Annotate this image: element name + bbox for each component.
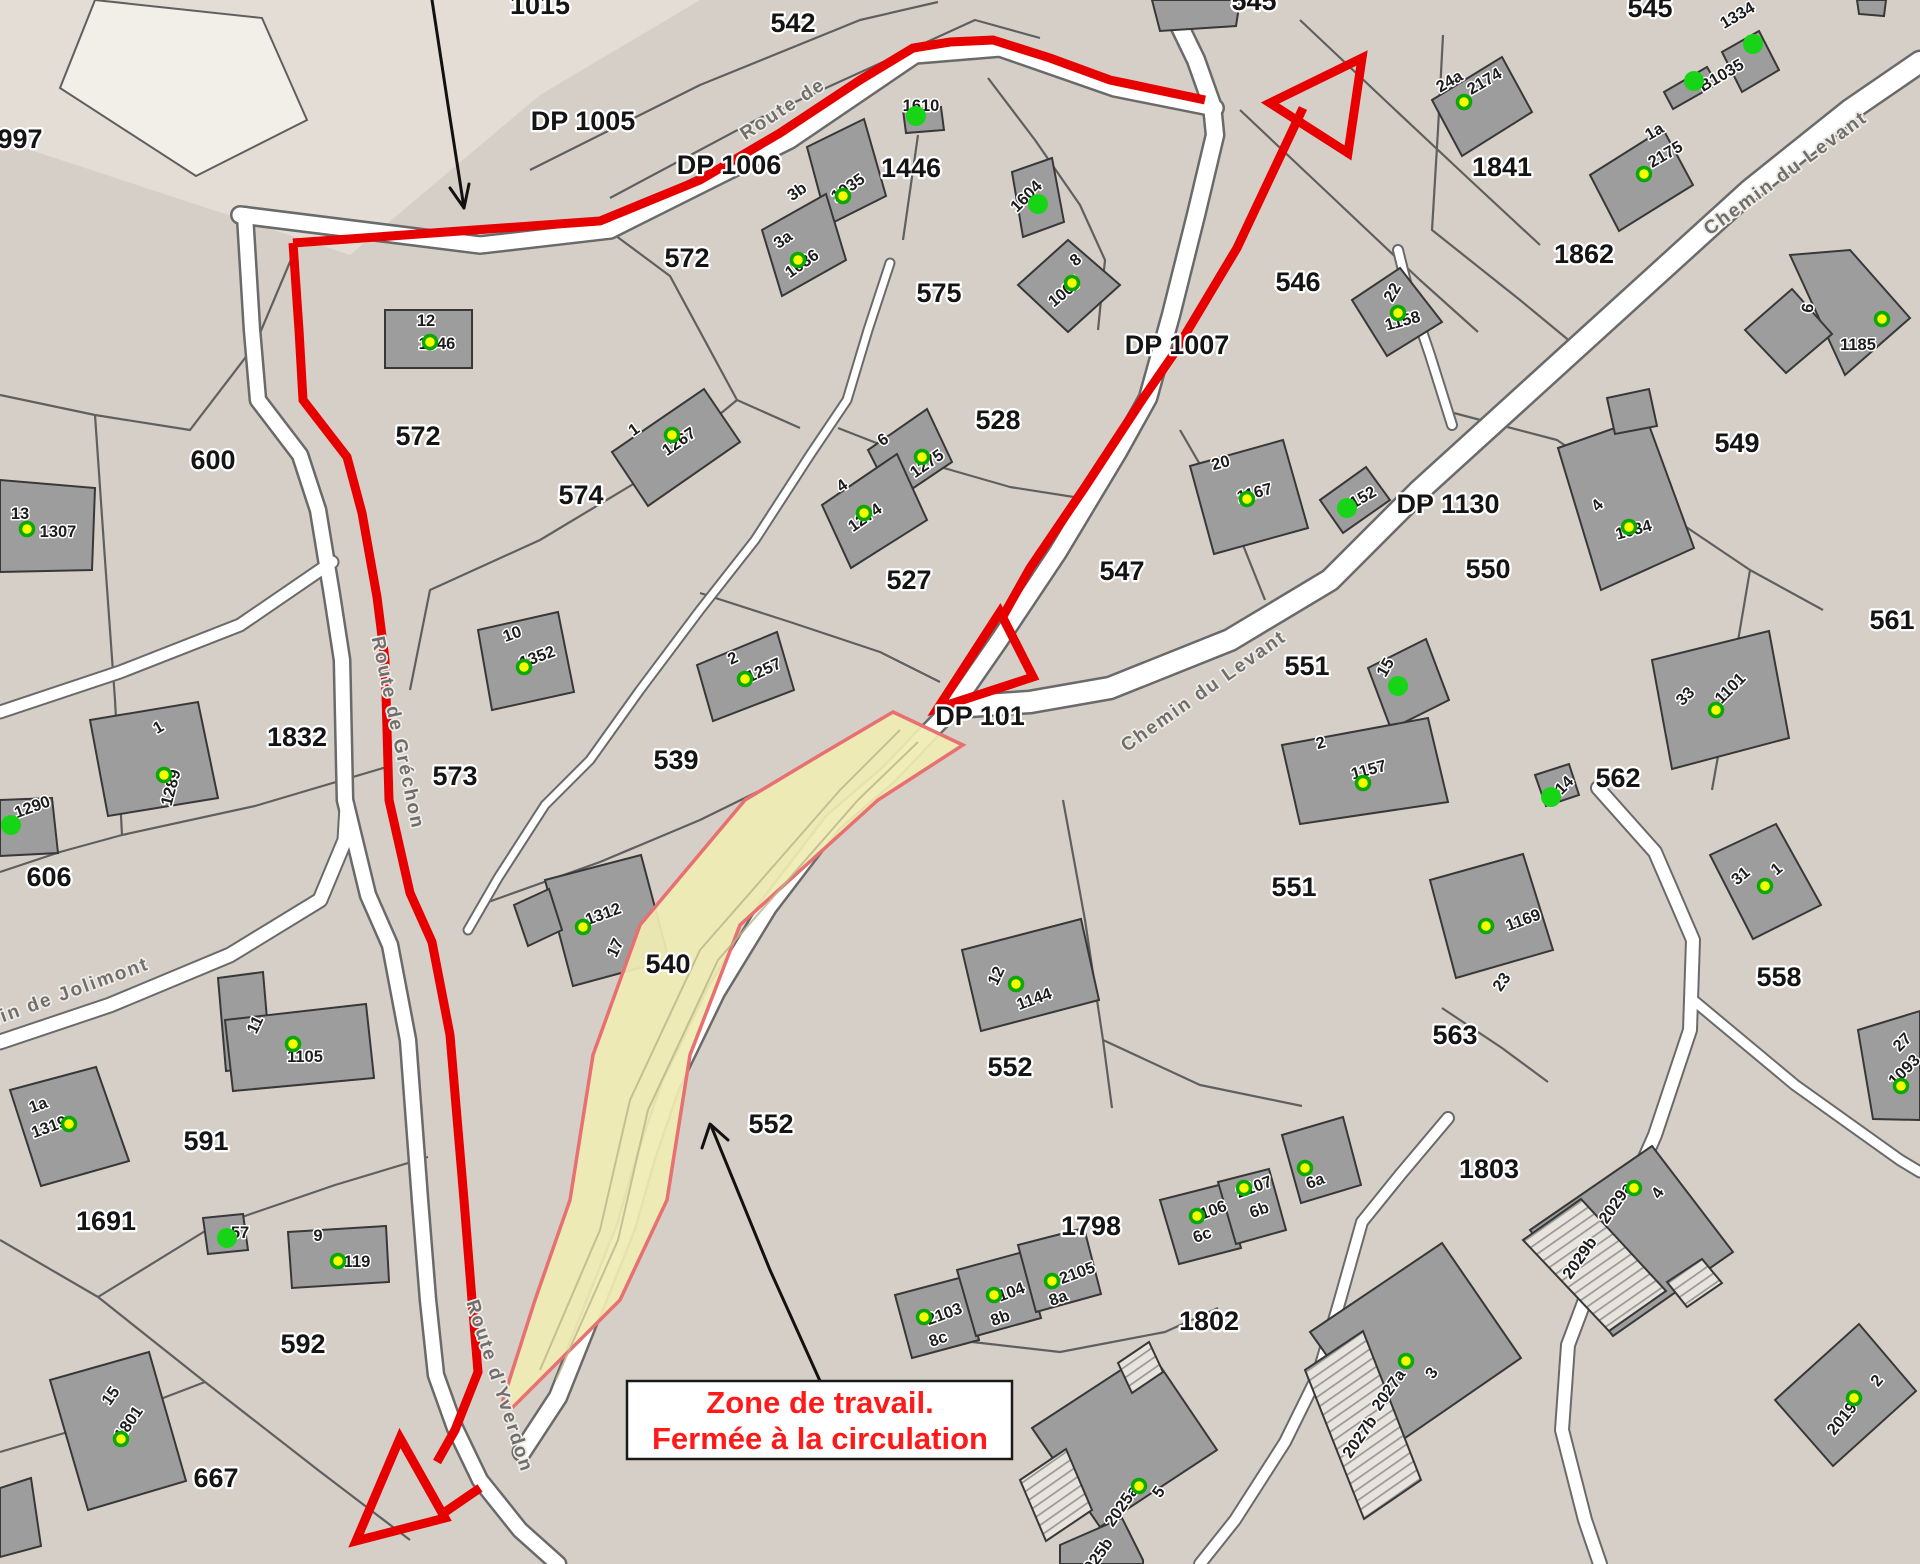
parcel-label: 562: [1595, 763, 1640, 793]
parcel-label: 540: [645, 949, 690, 979]
parcel-label: 592: [280, 1329, 325, 1359]
parcel-label: 561: [1869, 605, 1914, 635]
parcel-label: DP 1005: [531, 106, 636, 136]
parcel-label: 997: [0, 124, 43, 154]
address-dot-yellow: [666, 429, 679, 442]
parcel-label: DP 101: [935, 701, 1025, 731]
address-dot-yellow: [21, 523, 34, 536]
address-dot-yellow: [577, 921, 590, 934]
address-dot-green: [906, 106, 926, 126]
parcel-label: 546: [1275, 267, 1320, 297]
address-dot-yellow: [792, 254, 805, 267]
parcel-label: 1862: [1554, 239, 1614, 269]
address-dot-yellow: [1638, 168, 1651, 181]
parcel-label: 1832: [267, 722, 327, 752]
parcel-label: 574: [558, 480, 603, 510]
parcel-label: 558: [1756, 962, 1801, 992]
annotation-line2: Fermée à la circulation: [652, 1421, 988, 1456]
address-dot-yellow: [287, 1038, 300, 1051]
parcel-label: 552: [748, 1109, 793, 1139]
parcel-label: 545: [1231, 0, 1276, 16]
address-dot-yellow: [1392, 307, 1405, 320]
address-dot-green: [1684, 71, 1704, 91]
cadastral-map-page: Chemin du LevantChemin du LevantChemin d…: [0, 0, 1920, 1564]
address-dot-yellow: [988, 1289, 1001, 1302]
parcel-label: 1015: [510, 0, 570, 20]
parcel-label: 1803: [1459, 1154, 1519, 1184]
address-dot-green: [1388, 676, 1408, 696]
address-dot-yellow: [518, 661, 531, 674]
parcel-label: 545: [1627, 0, 1672, 23]
address-dot-yellow: [1191, 1210, 1204, 1223]
address-dot-green: [1028, 194, 1048, 214]
address-dot-yellow: [1400, 1355, 1413, 1368]
address-dot-yellow: [739, 673, 752, 686]
address-dot-yellow: [1895, 1080, 1908, 1093]
parcel-label: 591: [183, 1126, 228, 1156]
parcel-label: 572: [664, 243, 709, 273]
address-dot-green: [1541, 787, 1561, 807]
parcel-label: 573: [432, 761, 477, 791]
address-dot-yellow: [332, 1255, 345, 1268]
address-dot-yellow: [1299, 1162, 1312, 1175]
address-dot-yellow: [918, 1311, 931, 1324]
parcel-label: 575: [916, 278, 961, 308]
address-dot-yellow: [115, 1433, 128, 1446]
address-dot-yellow: [1628, 1182, 1641, 1195]
address-dot-yellow: [158, 769, 171, 782]
address-dot-yellow: [837, 190, 850, 203]
address-dot-yellow: [1238, 1182, 1251, 1195]
parcel-label: 539: [653, 745, 698, 775]
building-label: 1307: [40, 523, 77, 541]
address-dot-yellow: [1046, 1275, 1059, 1288]
address-dot-yellow: [1710, 704, 1723, 717]
address-dot-yellow: [1759, 880, 1772, 893]
parcel-label: 572: [395, 421, 440, 451]
parcel-label: 1841: [1472, 152, 1532, 182]
address-dot-yellow: [424, 336, 437, 349]
parcel-label: 528: [975, 405, 1020, 435]
parcel-label: 547: [1099, 556, 1144, 586]
parcel-label: 563: [1432, 1020, 1477, 1050]
parcel-label: 1802: [1179, 1306, 1239, 1336]
parcel-label: DP 1006: [677, 150, 782, 180]
parcel-label: 1798: [1061, 1211, 1121, 1241]
building-label: 9: [313, 1227, 322, 1245]
address-dot-green: [1743, 34, 1763, 54]
address-dot-yellow: [1133, 1480, 1146, 1493]
parcel-label: 542: [770, 8, 815, 38]
building-label: 119: [344, 1253, 371, 1271]
building-label: 13: [11, 505, 29, 523]
building-label: 12: [417, 312, 435, 330]
parcel-label: DP 1130: [1396, 489, 1499, 519]
parcel-label: 549: [1714, 428, 1759, 458]
cadastral-map: Chemin du LevantChemin du LevantChemin d…: [0, 0, 1920, 1564]
parcel-label: 550: [1465, 554, 1510, 584]
address-dot-yellow: [1357, 777, 1370, 790]
parcel-label: 551: [1271, 872, 1316, 902]
address-dot-green: [1, 815, 21, 835]
parcel-label: 1446: [881, 153, 941, 183]
address-dot-yellow: [1876, 313, 1889, 326]
address-dot-yellow: [1458, 96, 1471, 109]
parcel-label: 1691: [76, 1206, 136, 1236]
parcel-label: DP 1007: [1125, 330, 1230, 360]
work-zone-annotation: Zone de travail. Fermée à la circulation: [627, 1381, 1012, 1459]
address-dot-yellow: [1241, 493, 1254, 506]
parcel-label: 606: [26, 862, 71, 892]
parcel-label: 552: [987, 1052, 1032, 1082]
address-dot-green: [1337, 498, 1357, 518]
parcel-label: 527: [886, 565, 931, 595]
address-dot-yellow: [1623, 521, 1636, 534]
address-dot-yellow: [858, 507, 871, 520]
address-dot-yellow: [1480, 920, 1493, 933]
building-label: 1185: [1840, 336, 1876, 354]
parcel-label: 667: [193, 1463, 238, 1493]
parcel-label: 551: [1284, 651, 1329, 681]
address-dot-yellow: [63, 1118, 76, 1131]
parcel-label: 600: [190, 445, 235, 475]
address-dot-yellow: [1848, 1392, 1861, 1405]
address-dot-yellow: [1066, 277, 1079, 290]
address-dot-yellow: [916, 451, 929, 464]
address-dot-yellow: [1010, 978, 1023, 991]
address-dot-green: [217, 1228, 237, 1248]
annotation-line1: Zone de travail.: [706, 1385, 933, 1420]
